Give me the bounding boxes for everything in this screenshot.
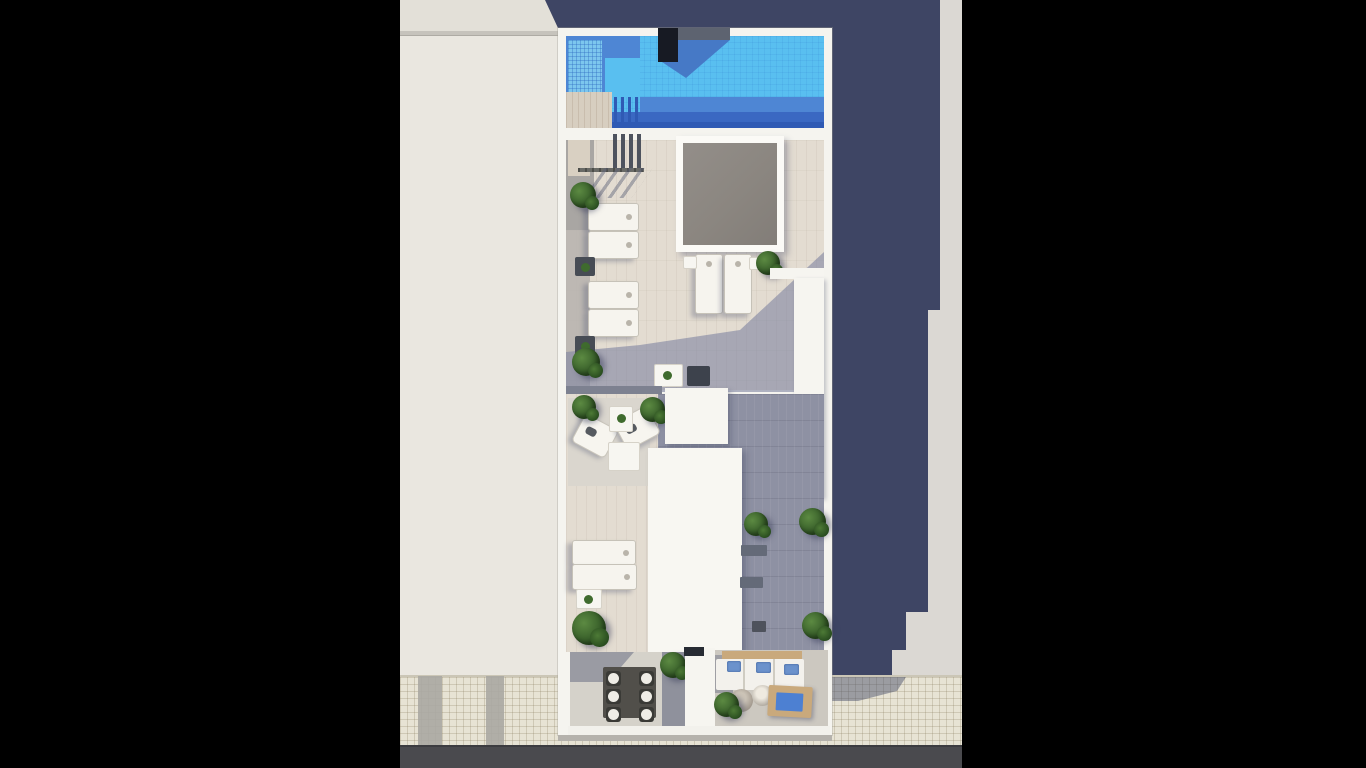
- plant: [572, 348, 600, 376]
- plant: [572, 611, 606, 645]
- sofa-pillow: [784, 664, 799, 675]
- side-table: [575, 257, 595, 276]
- letterbox-left-bar: [0, 0, 400, 768]
- pool-wood-deck: [566, 92, 612, 128]
- sofa-wood-rail: [722, 651, 802, 659]
- dining-chair: [606, 671, 621, 686]
- white-side-table: [683, 256, 697, 269]
- plant: [572, 395, 596, 419]
- render-photo: [400, 0, 962, 768]
- pool-ladder-step: [614, 97, 617, 124]
- sun-lounger: [695, 254, 723, 314]
- pool-ladder-step: [635, 97, 638, 124]
- chimney-cap-shadow: [678, 28, 730, 40]
- dining-chair: [606, 707, 621, 722]
- plant: [799, 508, 826, 535]
- sofa-pillow: [727, 661, 741, 672]
- roof-block: [665, 388, 728, 444]
- white-table-with-plant: [654, 364, 683, 387]
- plant: [570, 182, 596, 208]
- neighbor-roof-edge: [400, 31, 558, 36]
- neighbor-roof: [400, 0, 558, 675]
- plant: [660, 652, 686, 678]
- pool-ladder-step: [621, 97, 624, 124]
- plant: [714, 692, 739, 717]
- sun-lounger: [588, 231, 639, 259]
- driveway-2: [486, 676, 504, 746]
- road: [400, 745, 962, 768]
- sun-lounger: [572, 540, 636, 565]
- stair-core-roof: [648, 448, 742, 652]
- bbq-grill: [687, 366, 710, 386]
- pool-depth-band: [640, 97, 824, 112]
- facade-ground-shadow: [558, 735, 832, 741]
- pool-tanning-shelf: [568, 40, 602, 93]
- dining-chair: [606, 689, 621, 704]
- roof-vent: [741, 545, 767, 556]
- roof-vent: [752, 621, 766, 632]
- dining-chair: [639, 689, 654, 704]
- skylight-glass: [683, 143, 777, 245]
- sun-lounger: [572, 564, 637, 590]
- pergola-post: [621, 134, 625, 168]
- dining-chair: [639, 707, 654, 722]
- pergola-post: [629, 134, 633, 168]
- white-table-with-plant: [576, 589, 602, 609]
- sun-lounger: [588, 309, 639, 337]
- plant: [640, 397, 665, 422]
- white-table-with-plant: [609, 406, 633, 432]
- swimming-pool: [566, 36, 824, 128]
- coffee-table: [608, 442, 640, 471]
- dining-chair: [639, 671, 654, 686]
- sun-lounger: [724, 254, 752, 314]
- neighbor-roof-upper: [400, 0, 558, 31]
- driveway-1: [418, 676, 442, 746]
- sofa-pillow: [756, 662, 771, 673]
- plant: [744, 512, 768, 536]
- daybed: [767, 685, 813, 718]
- pier-notch: [684, 647, 704, 656]
- screenshot-root: [0, 0, 1366, 768]
- chimney: [658, 28, 678, 62]
- pergola-post: [637, 134, 641, 168]
- sun-lounger: [588, 281, 639, 309]
- plant: [802, 612, 829, 639]
- roof-vent: [740, 577, 763, 588]
- pergola-post: [613, 134, 617, 168]
- letterbox-right-bar: [962, 0, 1366, 768]
- balcony-divider-pier: [685, 648, 715, 728]
- pool-ladder-step: [628, 97, 631, 124]
